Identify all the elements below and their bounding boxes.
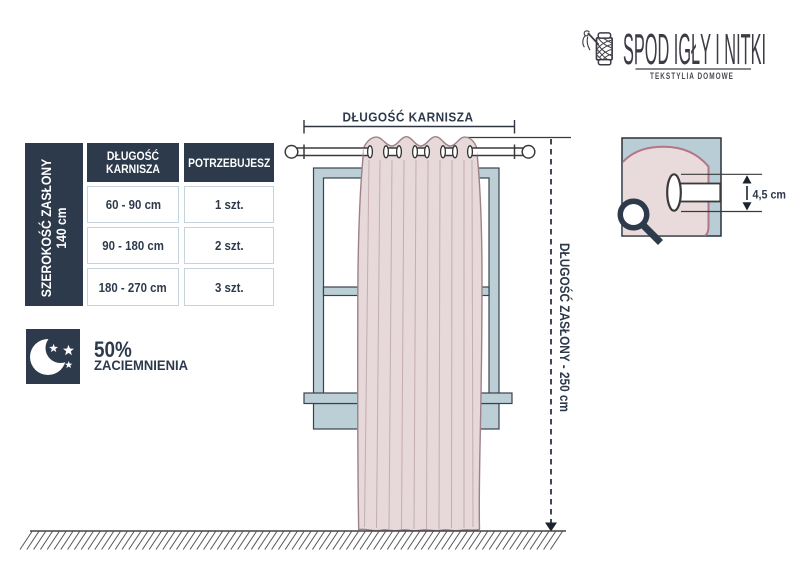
svg-text:DŁUGOŚĆ KARNISZA: DŁUGOŚĆ KARNISZA	[343, 110, 474, 125]
svg-text:TEKSTYLIA DOMOWE: TEKSTYLIA DOMOWE	[650, 70, 734, 81]
svg-text:DŁUGOŚĆ ZASŁONY - 250 cm: DŁUGOŚĆ ZASŁONY - 250 cm	[557, 243, 572, 412]
svg-text:SPOD IGŁY I NITKI: SPOD IGŁY I NITKI	[623, 25, 766, 74]
svg-text:4,5 cm: 4,5 cm	[753, 187, 787, 201]
